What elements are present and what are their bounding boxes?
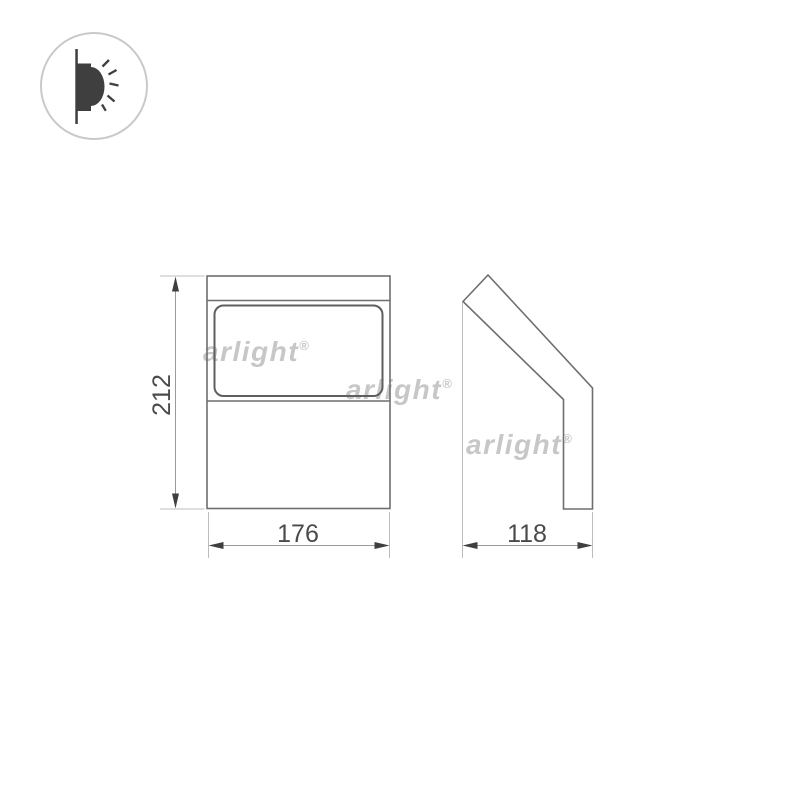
width-dimension-label: 176 xyxy=(277,520,319,548)
arrow-right-icon xyxy=(578,542,593,549)
registered-mark-icon: ® xyxy=(442,376,452,391)
watermark-text: arlight xyxy=(203,336,299,367)
arrow-down-icon xyxy=(172,494,179,509)
side-view xyxy=(463,275,593,509)
height-dimension-label: 212 xyxy=(148,374,176,416)
product-icon xyxy=(41,33,147,139)
arrow-up-icon xyxy=(172,277,179,292)
watermark-text: arlight xyxy=(466,429,562,460)
technical-drawing: arlight® arlight® arlight® xyxy=(0,0,800,800)
arrow-left-icon xyxy=(463,542,478,549)
arrow-left-icon xyxy=(209,542,224,549)
fixture-body xyxy=(78,64,92,112)
registered-mark-icon: ® xyxy=(299,338,309,353)
arrow-right-icon xyxy=(375,542,390,549)
wall-line xyxy=(75,49,78,124)
watermark-logo: arlight® xyxy=(466,429,572,460)
side-view-profile xyxy=(463,275,593,509)
depth-dimension-label: 118 xyxy=(507,520,547,548)
watermark-logo: arlight® xyxy=(203,336,309,367)
